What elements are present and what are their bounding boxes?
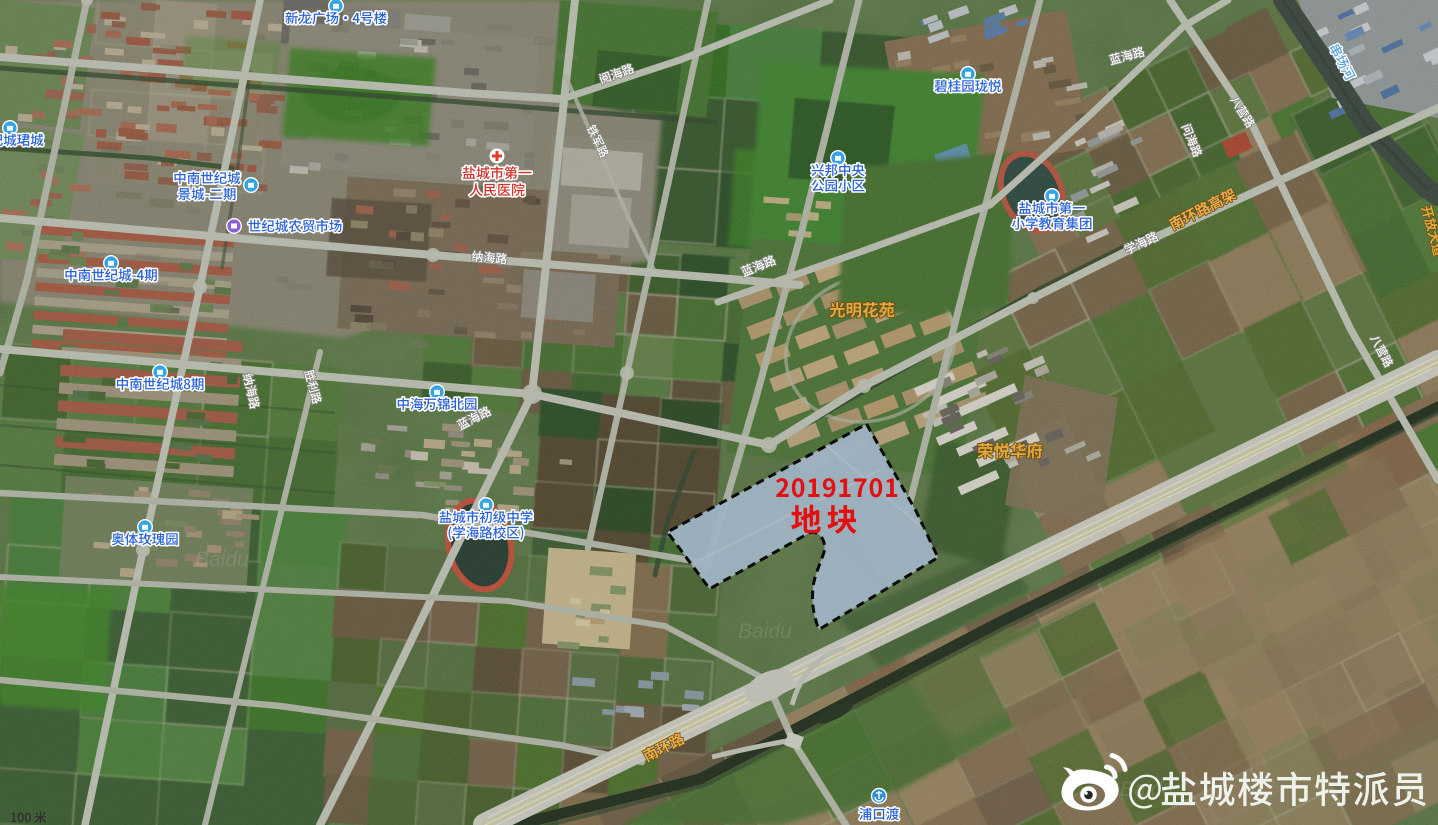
svg-text:Baidu: Baidu xyxy=(738,620,792,643)
svg-text:Baidu: Baidu xyxy=(195,548,249,571)
